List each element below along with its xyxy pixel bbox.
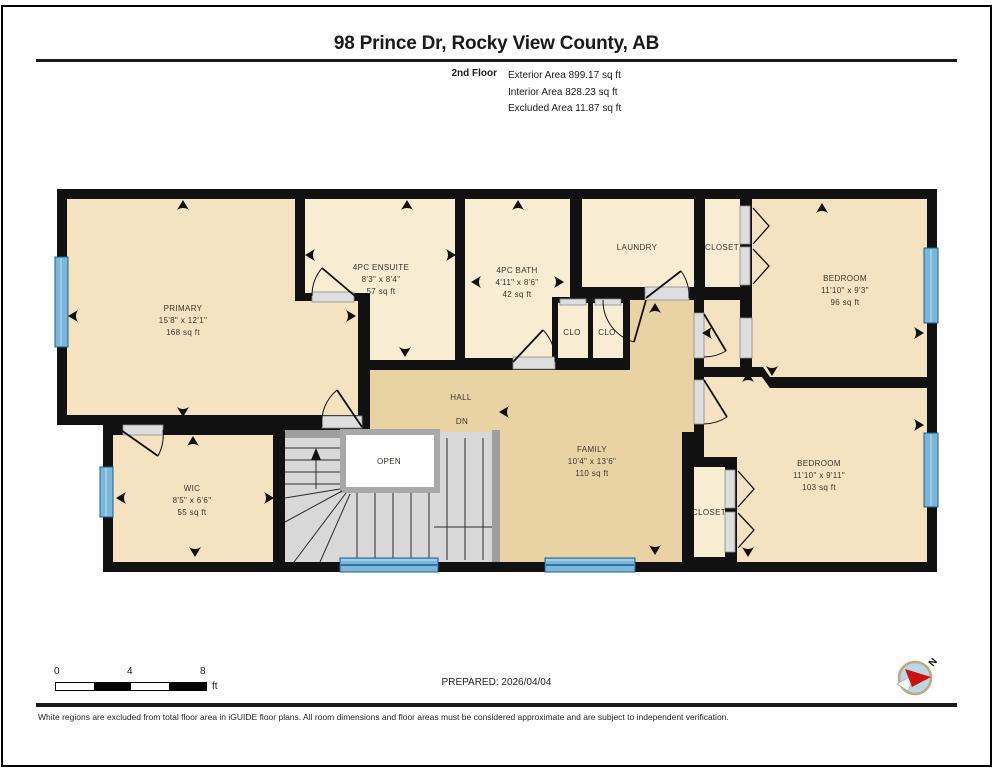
scale-label-4: 4 [127,666,133,677]
room-label: 4'11" x 8'6" [495,278,538,287]
door-opening-closet-top-2 [740,247,750,285]
window-stairs-bottom [340,558,438,572]
compass: N [897,656,940,694]
scale-label-8: 8 [200,666,206,677]
room-label: BEDROOM [797,459,841,468]
window-bedroom-bottom-right [924,433,938,507]
room-label: HALL [450,393,472,402]
header-rule [36,59,957,62]
room-label: 4PC ENSUITE [353,263,409,272]
door-opening-bedroom-bottom [694,380,704,424]
staircase [285,429,500,562]
room-label: CLOSET [692,508,726,517]
room-label: 55 sq ft [177,508,206,517]
prepared-date: PREPARED: 2026/04/04 [0,677,993,688]
door-opening-clo-left [560,299,586,305]
exterior-area: Exterior Area 899.17 sq ft [508,68,621,85]
room-label: 110 sq ft [575,469,609,478]
room-label: CLO [598,328,616,337]
room-label: 8'3" x 8'4" [362,275,401,284]
room-label: 11'10" x 9'11" [793,471,845,480]
room-label: 11'10" x 9'3" [821,286,869,295]
footer-rule [36,703,957,707]
door-opening-bath [513,357,555,369]
room-label: LAUNDRY [617,243,658,252]
door-opening-ensuite [312,292,354,302]
area-summary: Exterior Area 899.17 sq ft Interior Area… [508,68,621,118]
page-title: 98 Prince Dr, Rocky View County, AB [36,33,957,55]
floorplan-page: { "header": { "title": "98 Prince Dr, Ro… [0,0,993,768]
door-opening-wic [123,425,163,435]
door-opening-closet-bottom-1 [725,470,735,508]
door-opening-closet-bottom-2 [725,512,735,552]
scale-label-0: 0 [54,666,60,677]
room-label: BEDROOM [823,274,867,283]
door-opening-closet-top-1 [740,206,750,244]
interior-area: Interior Area 828.23 sq ft [508,85,621,102]
room-label: 96 sq ft [830,298,859,307]
room-label: 4PC BATH [496,266,537,275]
room-label: DN [456,417,468,426]
room-label: OPEN [377,457,401,466]
door-opening-clo-right [595,299,621,305]
room-label: 103 sq ft [802,483,836,492]
room-label: FAMILY [577,445,607,454]
room-label: 168 sq ft [166,328,200,337]
window-bedroom-top-right [924,248,938,323]
excluded-area: Excluded Area 11.87 sq ft [508,101,621,118]
room-label: PRIMARY [164,304,203,313]
window-primary-left [55,257,68,347]
door-opening-closet-bedroom [740,318,752,358]
room-label: 57 sq ft [366,287,395,296]
compass-n-label: N [927,656,940,669]
room-bedroom-bottom [704,377,927,562]
room-label: 15'8" x 12'1" [159,316,207,325]
stair-rail-right [492,430,500,562]
room-label: 10'4" x 13'6" [568,457,616,466]
room-label: WIC [184,484,201,493]
floor-plan: PRIMARY15'8" x 12'1"168 sq ft4PC ENSUITE… [0,0,993,768]
door-opening-alcove [694,313,704,358]
room-label: 42 sq ft [502,290,531,299]
room-label: CLOSET [705,243,739,252]
floor-label: 2nd Floor [451,68,497,79]
window-wic-left [100,467,113,517]
room-label: CLO [563,328,581,337]
window-family-bottom [545,558,635,572]
disclaimer-text: White regions are excluded from total fl… [38,712,963,722]
room-label: 8'5" x 6'6" [173,496,212,505]
